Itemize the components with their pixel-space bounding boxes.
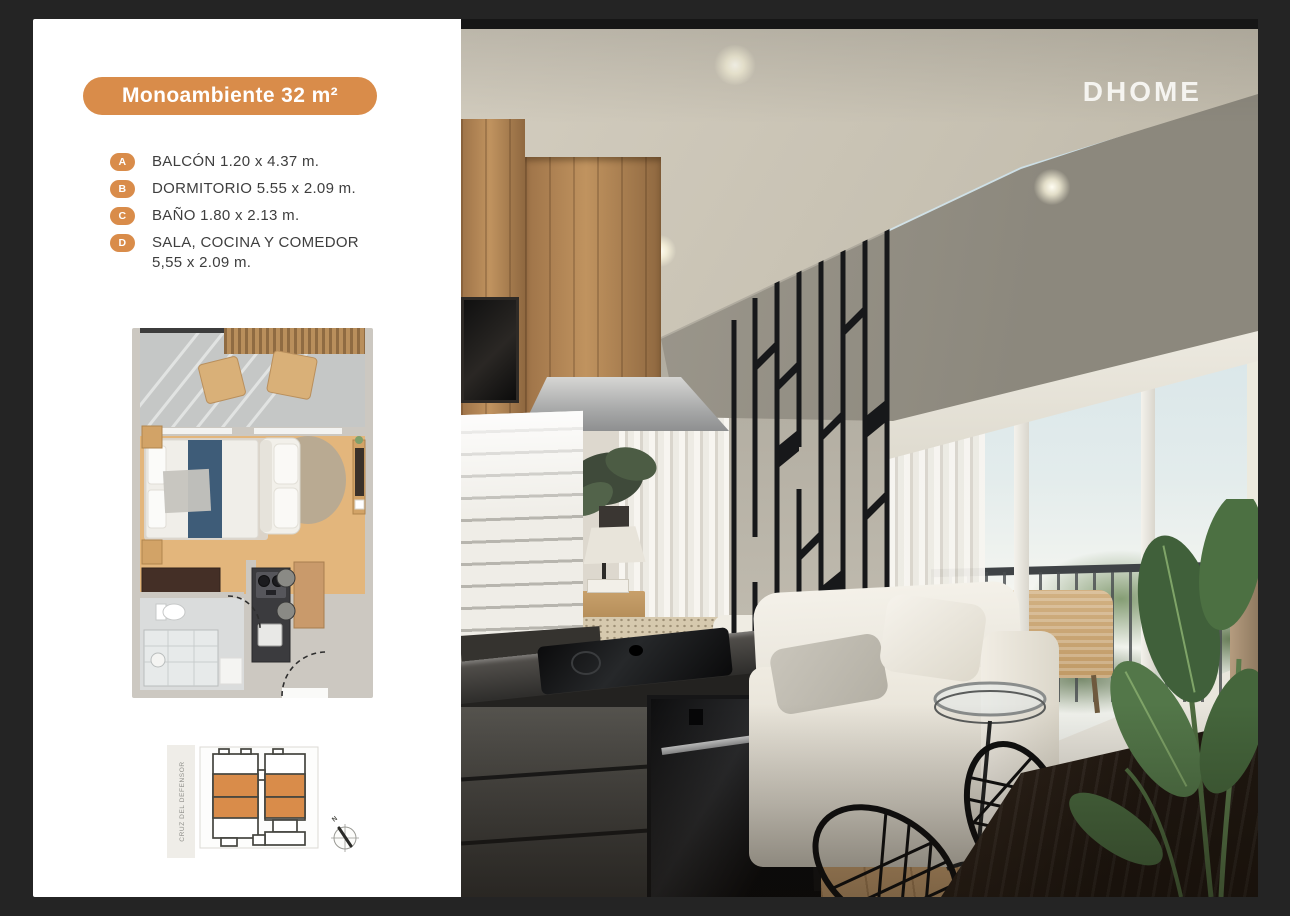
spec-label-balcon: BALCÓN 1.20 x 4.37 m. <box>152 152 319 172</box>
left-panel: Monoambiente 32 m² A BALCÓN 1.20 x 4.37 … <box>33 19 462 897</box>
microwave <box>461 297 519 403</box>
spec-item-dormitorio: B DORMITORIO 5.55 x 2.09 m. <box>110 179 440 199</box>
interior-photo: DHOME <box>461 19 1258 897</box>
spec-key-badge-a: A <box>110 153 135 171</box>
bath-mat <box>220 658 242 684</box>
photo-top-shadow <box>461 19 1258 29</box>
subway-tile-backsplash <box>461 411 583 651</box>
site-plan: CRUZ DEL DEFENSOR <box>165 740 370 872</box>
spec-label-dormitorio: DORMITORIO 5.55 x 2.09 m. <box>152 179 356 199</box>
toilet <box>163 604 185 620</box>
unit-title: Monoambiente 32 m² <box>122 84 338 108</box>
spec-item-sala: D SALA, COCINA Y COMEDOR 5,55 x 2.09 m. <box>110 233 440 273</box>
highlighted-unit-1 <box>213 774 258 797</box>
balcony-chair-2 <box>266 350 317 400</box>
dhome-logo: DHOME <box>1083 76 1202 108</box>
nightstand-books <box>587 579 629 593</box>
spec-label-bano: BAÑO 1.80 x 2.13 m. <box>152 206 299 226</box>
bathroom <box>140 592 244 690</box>
cooktop-burner-2 <box>629 645 643 656</box>
table-lamp-shade <box>582 526 645 564</box>
oven-handle-knob-1 <box>689 709 703 725</box>
spec-key-badge-d: D <box>110 234 135 252</box>
lower-cabinets <box>461 707 649 897</box>
dining-chair-2 <box>277 602 295 620</box>
cooktop-burner-1 <box>571 651 601 675</box>
highlighted-unit-3 <box>265 774 305 797</box>
floor-plan <box>132 328 373 698</box>
dining-chair-1 <box>277 569 295 587</box>
street-label: CRUZ DEL DEFENSOR <box>179 761 186 841</box>
highlighted-unit-4 <box>265 797 305 818</box>
spec-list: A BALCÓN 1.20 x 4.37 m. B DORMITORIO 5.5… <box>110 152 440 280</box>
spec-key-badge-b: B <box>110 180 135 198</box>
compass: N <box>331 815 359 852</box>
nightstand-2 <box>142 540 162 564</box>
foreground-plant <box>1061 499 1258 897</box>
spec-label-sala-line2: 5,55 x 2.09 m. <box>152 253 359 273</box>
spec-label-sala: SALA, COCINA Y COMEDOR 5,55 x 2.09 m. <box>152 233 359 273</box>
spec-key-badge-c: C <box>110 207 135 225</box>
nightstand-1 <box>142 426 162 448</box>
balcony <box>132 328 365 428</box>
tv <box>355 448 364 496</box>
compass-north-label: N <box>331 815 339 824</box>
dining-table <box>294 562 324 628</box>
sink <box>258 624 282 646</box>
spec-item-balcon: A BALCÓN 1.20 x 4.37 m. <box>110 152 440 172</box>
recessed-light-1 <box>713 45 757 85</box>
spec-label-sala-line1: SALA, COCINA Y COMEDOR <box>152 233 359 253</box>
spec-item-bano: C BAÑO 1.80 x 2.13 m. <box>110 206 440 226</box>
brochure-card: Monoambiente 32 m² A BALCÓN 1.20 x 4.37 … <box>33 19 1258 897</box>
page-background: { "colors": { "accent_orange": "#d98c4a"… <box>0 0 1290 916</box>
highlighted-unit-2 <box>213 797 258 818</box>
recessed-light-2 <box>1033 169 1071 205</box>
unit-title-badge: Monoambiente 32 m² <box>83 77 377 115</box>
